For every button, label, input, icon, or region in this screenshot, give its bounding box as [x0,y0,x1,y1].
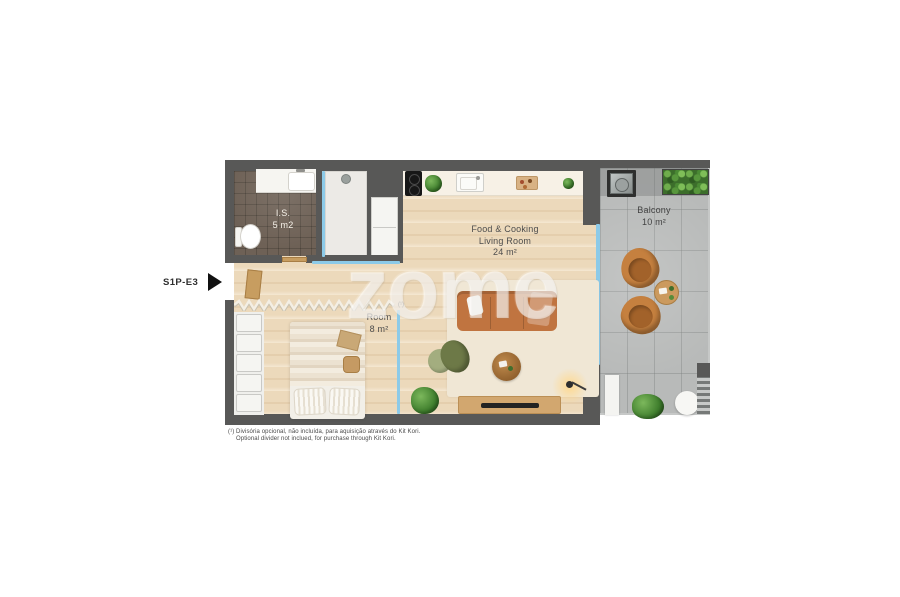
outdoor-sink [607,170,636,197]
wall-left-upper [225,160,234,263]
bedroom-name: Room [350,312,408,324]
cutting-board-icon [516,176,538,190]
wardrobe [234,312,264,415]
living-name-line2: Living Room [445,236,565,248]
living-plant [411,387,439,414]
unit-arrow-icon [208,273,222,291]
label-balcony: Balcony 10 m² [614,205,694,228]
bedside-stool [343,356,360,373]
label-bathroom: I.S. 5 m2 [253,208,313,231]
planter-hedge [662,169,709,195]
label-living: Food & Cooking Living Room 24 m² [445,224,565,259]
tv-icon [481,403,539,408]
bedroom-area: 8 m² [350,324,408,336]
vanity [256,169,316,193]
vanity-basin-icon [288,172,315,191]
fridge-cabinet [371,197,398,257]
faucet-icon [296,169,305,172]
footnote-en: Optional divider not inclued, for purcha… [236,436,396,443]
label-bedroom: Room 8 m² [350,312,408,335]
divider-footnote-marker: (¹) [398,302,404,308]
balcony-bench [605,375,619,415]
balcony-area: 10 m² [614,217,694,229]
bathroom-area: 5 m2 [253,220,313,232]
sofa [457,291,557,331]
unit-label: S1P-E3 [163,277,198,288]
tv-console [458,396,561,414]
pillow-left [293,387,326,416]
sofa-throw [527,292,553,327]
balcony-side-table [654,280,679,305]
balcony-round-table [675,391,699,415]
wall-top-balcony [600,160,710,168]
floor-plan: (¹) I.S. 5 m2 [0,0,900,597]
pillow-right [328,387,360,416]
bathroom-name: I.S. [253,208,313,220]
wall-left-lower [225,300,234,425]
sofa-pillow [466,295,484,316]
living-area: 24 m² [445,247,565,259]
wall-kitchen-jog [583,160,600,225]
coffee-table [492,352,521,381]
corridor-glass-line [312,261,400,264]
shower-glass-line [322,171,325,257]
balcony-name: Balcony [614,205,694,217]
footnote-pt: (¹) Divisória opcional, não incluída, pa… [228,429,420,436]
wall-bath-bottom-left [225,255,282,263]
kitchen-sink-icon [456,173,484,192]
shower-head-icon [341,174,351,184]
entry-door [245,269,263,299]
drain-grate [697,377,710,414]
living-name-line1: Food & Cooking [445,224,565,236]
balcony-plant [632,394,664,419]
wall-balcony-corner [697,363,710,377]
kitchen-herb-icon [563,178,574,189]
wall-bottom [225,414,600,425]
cooktop-icon [405,171,422,196]
optional-divider-zigzag [234,299,398,311]
bathroom-door [282,257,307,262]
kitchen-plant-icon [425,175,442,192]
